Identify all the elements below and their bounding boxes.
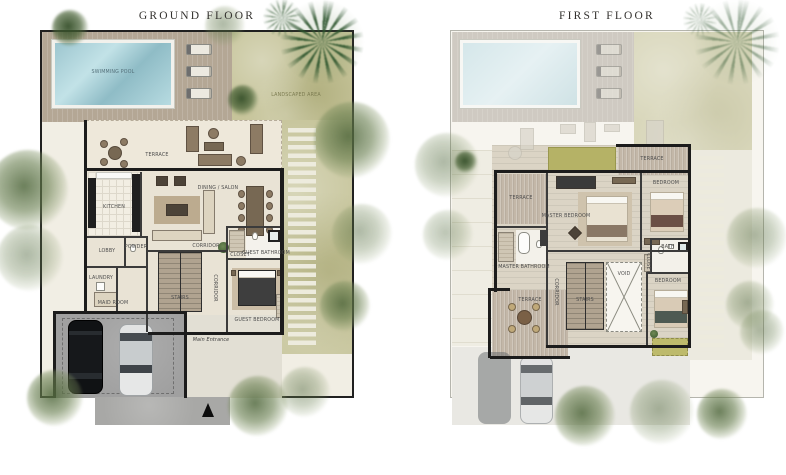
terrace-chair	[236, 156, 246, 166]
ghost-car	[520, 356, 553, 424]
label-terrace-lower: TERRACE	[518, 297, 541, 303]
kitchen-counter-right	[132, 174, 140, 232]
outdoor-chair	[120, 138, 128, 146]
partition	[226, 226, 228, 332]
label-terrace-left: TERRACE	[509, 195, 532, 201]
dining-chair	[266, 190, 273, 198]
bathtub	[518, 232, 530, 254]
label-terrace: TERRACE	[145, 152, 168, 158]
partition	[86, 236, 146, 238]
terrace-chair	[508, 325, 516, 333]
sun-lounger	[186, 88, 212, 99]
sun-lounger	[186, 44, 212, 55]
bed-pillows	[239, 271, 275, 278]
label-swimming-pool: SWIMMING POOL	[92, 69, 135, 75]
wall	[184, 311, 187, 398]
partition	[148, 250, 226, 252]
washing-machine	[96, 282, 105, 291]
terrace-table	[204, 142, 224, 151]
bush	[455, 151, 477, 173]
dining-table	[246, 186, 264, 236]
partition	[640, 172, 642, 250]
terrace-sofa	[250, 124, 263, 154]
sun-lounger	[186, 66, 212, 77]
bed-pillows	[587, 197, 627, 204]
armchair	[156, 176, 168, 186]
terrace-sofa	[198, 154, 232, 166]
master-closet	[498, 232, 514, 262]
terrace-chair	[208, 128, 219, 139]
terrace-chair	[532, 325, 540, 333]
label-master-bathroom: MASTER BATHROOM	[498, 264, 549, 270]
label-guest-bedroom: GUEST BEDROOM	[235, 317, 280, 323]
wall	[688, 172, 691, 348]
label-corridor-a: CORRIDOR	[192, 243, 219, 249]
label-dining-salon: DINING / SALON	[198, 185, 239, 191]
ground-floor-title: GROUND FLOOR	[40, 10, 354, 22]
master-bed	[586, 196, 628, 242]
tree	[697, 389, 747, 439]
coffee-table	[166, 204, 188, 216]
shower	[268, 230, 280, 242]
dining-chair	[238, 190, 245, 198]
label-corridor: CORRIDOR	[553, 278, 559, 305]
floorplan-sheet: GROUND FLOOR	[0, 0, 786, 475]
wall	[616, 144, 690, 147]
label-landscaped-area: LANDSCAPED AREA	[271, 92, 321, 98]
ghost-furniture	[560, 124, 576, 134]
partition	[226, 226, 284, 228]
partition	[646, 272, 648, 346]
tree	[0, 225, 63, 291]
guest-toilet	[252, 232, 258, 240]
wall	[494, 170, 549, 173]
wall	[546, 170, 690, 173]
partition	[650, 238, 690, 240]
partition	[226, 258, 284, 260]
stairs-first	[566, 262, 604, 330]
bush	[228, 85, 258, 115]
tree	[423, 210, 473, 260]
tree	[320, 281, 370, 331]
sofa	[152, 230, 202, 241]
label-laundry: LAUNDRY	[89, 275, 113, 281]
first-floor-title: FIRST FLOOR	[450, 10, 764, 22]
dining-chair	[266, 214, 273, 222]
guest-closet	[229, 230, 245, 252]
label-bedroom-upper: BEDROOM	[653, 180, 679, 186]
ghost-pool	[460, 40, 580, 108]
ghost-furniture	[604, 124, 620, 132]
label-bedroom-lower: BEDROOM	[655, 278, 681, 284]
kitchen-cabinets	[96, 172, 132, 179]
dining-chair	[238, 202, 245, 210]
armchair	[174, 176, 186, 186]
partition	[646, 272, 690, 274]
bedroom-upper-bed	[650, 192, 684, 232]
wall	[148, 332, 284, 335]
terrace-chair	[532, 303, 540, 311]
terrace-round-table	[517, 310, 532, 325]
terrace-chair	[508, 303, 516, 311]
wall	[490, 356, 570, 359]
tree	[228, 376, 288, 436]
ghost-furniture	[584, 122, 596, 142]
wall	[84, 168, 87, 314]
tree	[630, 380, 694, 444]
tree	[727, 208, 786, 268]
stepping-stones	[288, 128, 316, 346]
green-roof	[548, 147, 616, 172]
kitchen-counter-left	[88, 178, 96, 228]
ghost-furniture	[646, 120, 664, 146]
ghost-furniture	[508, 146, 522, 160]
label-corridor-b: CORRIDOR	[212, 274, 218, 301]
bed-pillows	[655, 291, 687, 298]
label-stairs: STAIRS	[576, 297, 594, 303]
outdoor-chair	[100, 140, 108, 148]
terrace-sofa	[186, 126, 199, 152]
indoor-plant	[650, 330, 658, 338]
label-kitchen: KITCHEN	[103, 204, 125, 210]
wall	[488, 288, 510, 291]
label-powder: POWDER	[125, 244, 147, 250]
partition	[546, 172, 548, 346]
tree	[27, 370, 83, 426]
outdoor-round-table	[108, 146, 122, 160]
label-stairs: STAIRS	[171, 295, 189, 301]
ghost-furniture	[520, 128, 534, 150]
stair-rail	[585, 263, 586, 329]
tv-console	[612, 177, 636, 184]
dining-chair	[266, 202, 273, 210]
sofa	[203, 190, 215, 234]
outdoor-chair	[120, 160, 128, 168]
tree	[555, 386, 615, 446]
wall	[488, 288, 491, 358]
ghost-lounger	[596, 66, 622, 77]
bed-throw	[587, 225, 627, 237]
label-guest-bathroom: GUEST BATHROOM	[242, 250, 290, 256]
label-terrace-upper: TERRACE	[640, 156, 663, 162]
partition	[124, 236, 126, 266]
label-bath: BATH	[661, 244, 674, 250]
tree	[280, 367, 330, 417]
ghost-lounger	[596, 44, 622, 55]
partition	[496, 226, 548, 228]
ghost-suv	[478, 352, 511, 424]
ghost-lounger	[596, 88, 622, 99]
label-lobby: LOBBY	[99, 248, 115, 254]
wall	[494, 170, 497, 292]
guest-bed	[238, 270, 276, 306]
master-sofa	[556, 176, 596, 189]
label-master-bedroom: MASTER BEDROOM	[542, 213, 591, 219]
tree	[740, 310, 784, 354]
bed-throw	[651, 215, 683, 227]
wall	[84, 120, 87, 170]
tree	[332, 204, 392, 264]
stair-rail	[180, 253, 181, 311]
stairs-ground	[158, 252, 202, 312]
partition	[546, 250, 690, 252]
label-maid-room: MAID ROOM	[98, 300, 129, 306]
partition	[140, 172, 142, 236]
wall	[84, 168, 284, 171]
outdoor-chair	[100, 158, 108, 166]
bed-pillows	[651, 193, 683, 200]
label-main-entrance: Main Entrance	[193, 337, 230, 343]
dining-chair	[238, 214, 245, 222]
stepping-stones	[698, 156, 724, 352]
wall	[53, 311, 187, 314]
label-closet: CLOSET	[645, 253, 651, 273]
label-void: VOID	[618, 271, 631, 277]
wall	[688, 144, 691, 174]
north-arrow	[202, 403, 214, 417]
tree	[314, 102, 390, 178]
nightstand	[231, 270, 236, 276]
wall	[546, 345, 691, 348]
